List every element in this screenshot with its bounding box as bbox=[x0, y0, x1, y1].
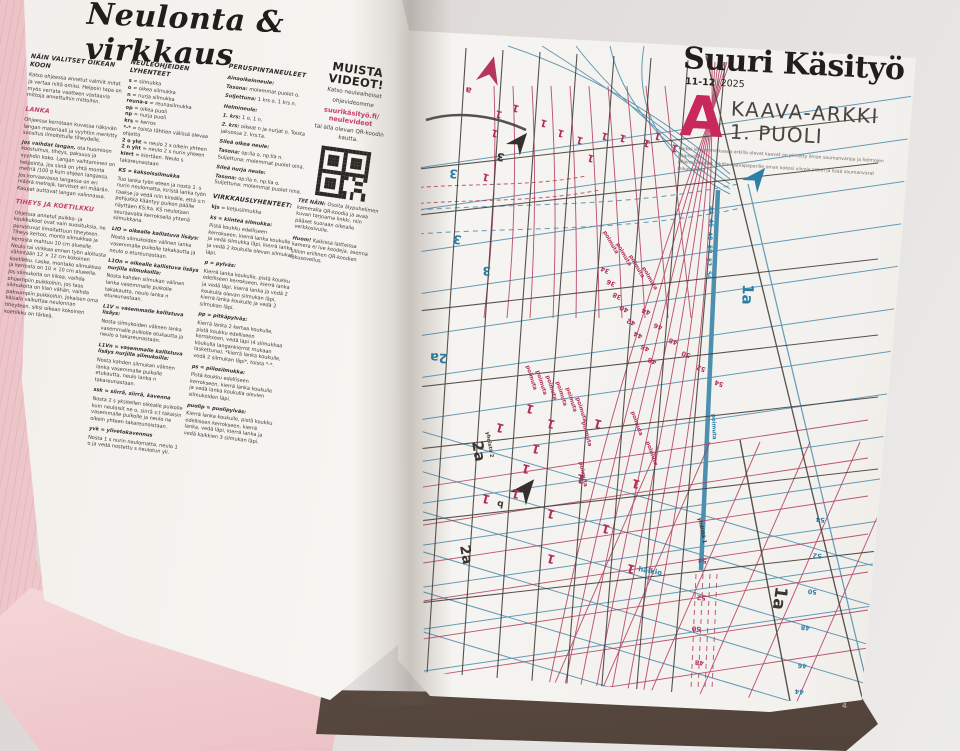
pattern-label: 48 bbox=[800, 623, 810, 632]
sheet-title-row: A KAAVA-ARKKI 1. PUOLI bbox=[679, 95, 906, 153]
pattern-label: 54 bbox=[815, 515, 825, 524]
pattern-label: 3 bbox=[449, 166, 459, 181]
pattern-label: 1 bbox=[524, 401, 536, 417]
sheet-letter-a: A bbox=[679, 95, 725, 142]
pattern-label: 48 bbox=[706, 232, 713, 241]
pattern-label: yhdistä 1 bbox=[696, 517, 707, 544]
pattern-label: 2a bbox=[456, 544, 475, 566]
pattern-label: 1 bbox=[600, 129, 610, 141]
pattern-label: 46 bbox=[639, 342, 651, 353]
pattern-label: 1 bbox=[510, 486, 522, 502]
qr-module bbox=[361, 198, 365, 202]
pattern-label: poimuta bbox=[710, 414, 717, 440]
pattern-label: 1 bbox=[520, 461, 532, 477]
pattern-label: 48 bbox=[694, 658, 704, 667]
text-block: Kierrä lanka 2 kertaa koukulle, pistä ko… bbox=[193, 320, 285, 370]
pattern-label: 1 bbox=[511, 101, 521, 113]
pattern-label: 2a bbox=[430, 349, 449, 365]
pattern-label: 54 bbox=[713, 378, 725, 389]
pattern-label: 1 bbox=[539, 116, 549, 128]
pattern-label: 46 bbox=[707, 219, 714, 228]
magazine-photo: Neulonta & virkkaus NÄIN VALITSET OIKEAN… bbox=[0, 0, 960, 751]
pattern-label: 44 bbox=[707, 206, 714, 215]
page-number: 4 bbox=[842, 702, 847, 710]
pattern-label: 54 bbox=[697, 556, 707, 565]
pattern-label: 1 bbox=[490, 126, 500, 138]
pattern-label: 1 bbox=[618, 131, 628, 143]
pattern-label: 44 bbox=[794, 687, 804, 696]
pattern-label: a bbox=[465, 84, 473, 95]
pattern-sheet-header: Suuri Käsityö 11-12|2025 A KAAVA-ARKKI 1… bbox=[677, 44, 909, 186]
pattern-label: 1 bbox=[575, 133, 585, 145]
tee-nain-text: Osoita älypuhelimen kameralla QR-koodia … bbox=[294, 202, 379, 235]
pattern-label: 1 bbox=[625, 561, 637, 577]
pattern-label: 3 bbox=[452, 232, 462, 247]
pattern-label: 40 bbox=[618, 303, 630, 314]
pattern-label: halkio bbox=[638, 565, 663, 577]
pattern-label: 44 bbox=[632, 329, 644, 340]
pattern-label: 3 bbox=[482, 264, 491, 278]
pattern-label: 52 bbox=[812, 551, 822, 560]
pattern-label: 44 bbox=[640, 306, 652, 317]
pattern-label: 3 bbox=[496, 150, 506, 164]
pattern-label: 46 bbox=[652, 321, 664, 332]
pattern-label: 48 bbox=[667, 336, 679, 347]
pattern-label: poimuta bbox=[580, 421, 592, 448]
pattern-label: 50 bbox=[691, 624, 701, 633]
text-block: Ohjeissa annetut puikko- ja koukkukoot o… bbox=[4, 210, 111, 325]
pattern-label: b bbox=[496, 498, 505, 509]
pattern-label: 1 bbox=[600, 521, 612, 537]
tee-nain-note: TEE NÄIN: Osoita älypuhelimen kameralla … bbox=[294, 198, 380, 242]
pattern-label: 52 bbox=[705, 258, 712, 267]
pattern-label: 54 bbox=[705, 271, 712, 280]
pattern-label: 36 bbox=[605, 277, 617, 288]
pattern-label: 1 bbox=[556, 126, 566, 138]
pattern-label: 52 bbox=[696, 593, 706, 602]
pattern-label: poimuta bbox=[524, 365, 538, 391]
pattern-label: 1a bbox=[768, 585, 791, 611]
text-block: Tuo lanka työn eteen ja nosta 1. s nurin… bbox=[113, 176, 210, 232]
text-block: Jos vaihdat langan, ota huomioon koostum… bbox=[17, 139, 118, 201]
pattern-label: 1 bbox=[642, 136, 652, 148]
pattern-label: 1 bbox=[545, 551, 557, 567]
pattern-label: 1 bbox=[494, 107, 504, 119]
pattern-label: 50 bbox=[680, 349, 692, 360]
qr-code bbox=[315, 145, 371, 201]
pattern-label: 42 bbox=[625, 316, 637, 327]
pattern-label: 48 bbox=[646, 355, 658, 366]
pattern-label: 1 bbox=[586, 151, 596, 163]
pattern-label: 1a bbox=[738, 284, 757, 305]
pattern-label: 1 bbox=[545, 416, 557, 432]
pattern-label: 46 bbox=[797, 661, 807, 670]
pattern-label: 1 bbox=[653, 129, 663, 141]
pattern-label: 1 bbox=[592, 416, 604, 432]
pattern-label: 50 bbox=[807, 587, 817, 596]
text-block: Kierrä lanka koukulle, pistä koukku edel… bbox=[199, 268, 291, 318]
pattern-label: 1 bbox=[530, 441, 542, 457]
pattern-label: 1 bbox=[480, 491, 492, 507]
pattern-label: 1 bbox=[494, 420, 506, 436]
pattern-label: 1 bbox=[481, 170, 491, 182]
pattern-label: 50 bbox=[706, 245, 713, 254]
pattern-label: 1 bbox=[630, 476, 642, 492]
